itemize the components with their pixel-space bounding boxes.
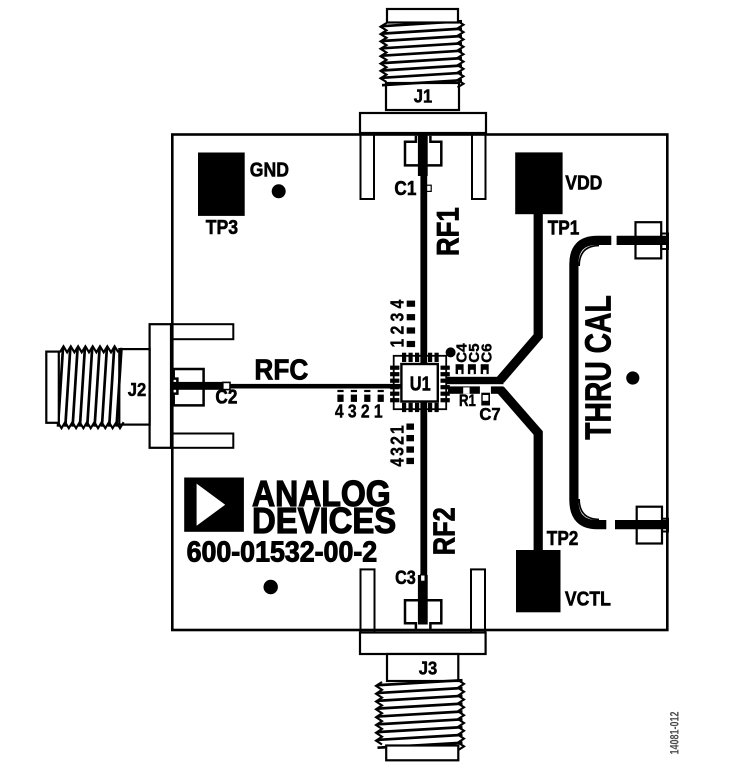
svg-text:C7: C7 — [479, 405, 500, 424]
svg-text:C6: C6 — [479, 343, 496, 362]
svg-text:RFC: RFC — [254, 353, 308, 385]
svg-text:600-01532-00-2: 600-01532-00-2 — [187, 536, 378, 568]
svg-text:R1: R1 — [459, 391, 476, 410]
svg-text:J3: J3 — [419, 658, 438, 679]
svg-text:C3: C3 — [395, 567, 416, 589]
svg-text:C2: C2 — [215, 385, 237, 408]
svg-text:1234: 1234 — [386, 296, 408, 348]
svg-text:4321: 4321 — [335, 400, 387, 422]
svg-text:4321: 4321 — [386, 423, 408, 467]
svg-text:TP2: TP2 — [547, 528, 579, 551]
svg-text:VDD: VDD — [565, 172, 602, 195]
svg-text:C1: C1 — [394, 177, 416, 200]
svg-text:GND: GND — [250, 159, 289, 182]
svg-text:RF2: RF2 — [427, 507, 462, 555]
svg-text:U1: U1 — [410, 372, 431, 395]
svg-text:RF1: RF1 — [431, 207, 466, 256]
svg-text:J1: J1 — [414, 86, 433, 107]
svg-text:TP3: TP3 — [206, 217, 238, 240]
svg-text:VCTL: VCTL — [565, 588, 611, 611]
svg-text:J2: J2 — [128, 379, 147, 400]
svg-text:14081-012: 14081-012 — [668, 711, 682, 754]
svg-text:TP1: TP1 — [548, 217, 580, 240]
svg-text:THRU CAL: THRU CAL — [578, 295, 618, 439]
